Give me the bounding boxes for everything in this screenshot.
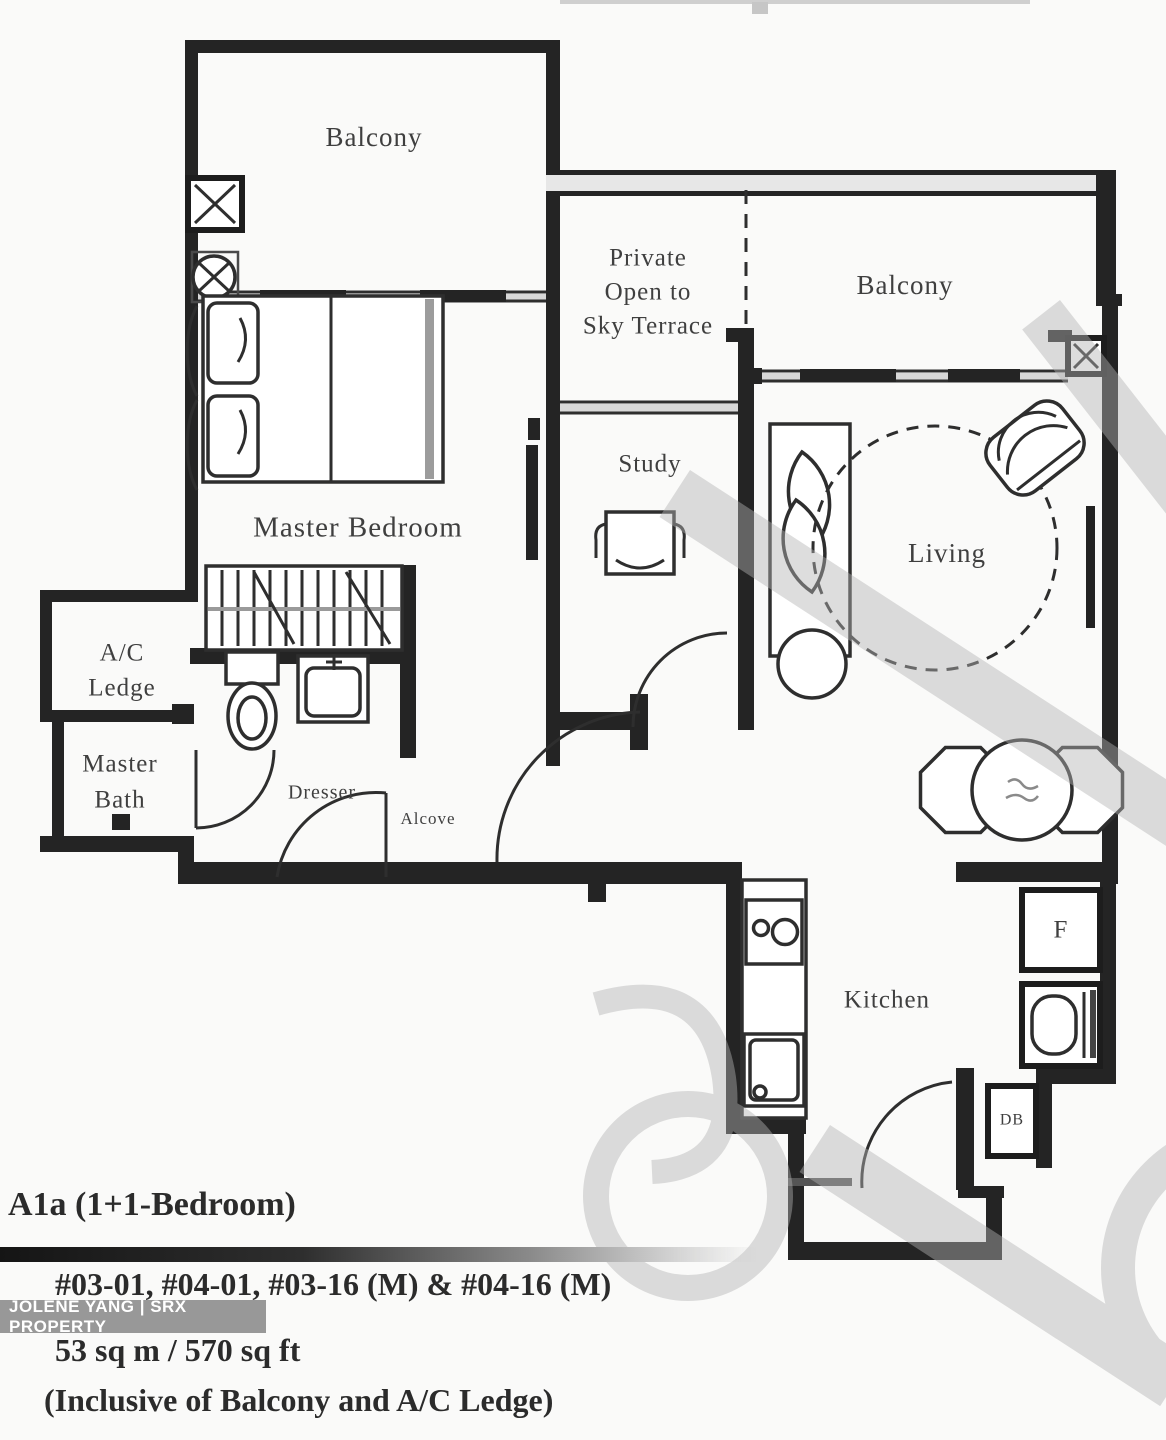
label-bath-2: Bath	[94, 787, 145, 814]
pillow	[208, 303, 258, 383]
kitchen-sink-icon	[744, 1034, 804, 1106]
unit-type-title: A1a (1+1-Bedroom)	[8, 1186, 296, 1224]
label-balcony-top: Balcony	[326, 122, 423, 152]
label-kitchen: Kitchen	[844, 987, 930, 1014]
bath-door	[196, 750, 274, 828]
label-alcove: Alcove	[400, 809, 455, 828]
scan-artifacts	[560, 0, 1030, 14]
floor-area: 53 sq m / 570 sq ft	[55, 1332, 300, 1369]
kitchen-counter	[742, 880, 806, 1118]
corridor-door	[497, 712, 640, 862]
label-bath-1: Master	[82, 751, 157, 778]
label-balcony-right: Balcony	[857, 270, 954, 300]
balcony-sliding-door-right	[750, 368, 1068, 384]
label-dresser: Dresser	[288, 782, 356, 804]
hob-icon	[746, 900, 802, 964]
label-terrace-3: Sky Terrace	[583, 313, 713, 340]
sky-terrace-window	[560, 402, 738, 413]
wardrobe	[206, 566, 402, 650]
floor-plan-drawing: Balcony Private Open to Sky Terrace Balc…	[0, 0, 1166, 1440]
sliding-panel-marker	[1086, 506, 1095, 628]
agent-watermark-text: JOLENE YANG | SRX PROPERTY	[9, 1297, 266, 1337]
divider-gradient-bar	[0, 1247, 757, 1262]
label-terrace-1: Private	[609, 245, 687, 272]
bed	[187, 296, 443, 490]
basin-icon	[298, 654, 368, 722]
wall-box-x-icon	[188, 178, 242, 230]
label-fridge: F	[1054, 917, 1069, 944]
label-ac-1: A/C	[100, 640, 145, 667]
agent-watermark-band: JOLENE YANG | SRX PROPERTY	[0, 1300, 266, 1333]
floor-area-note: (Inclusive of Balcony and A/C Ledge)	[44, 1382, 553, 1419]
armchair	[977, 392, 1092, 503]
side-table	[778, 630, 846, 698]
floor-plan-page: Balcony Private Open to Sky Terrace Balc…	[0, 0, 1166, 1440]
pillow	[208, 396, 258, 476]
label-db: DB	[1000, 1112, 1024, 1129]
toilet-icon	[226, 652, 278, 749]
label-study: Study	[618, 451, 681, 478]
label-ac-2: Ledge	[88, 675, 155, 702]
label-living: Living	[908, 538, 986, 568]
washer-icon	[1022, 984, 1100, 1066]
label-terrace-2: Open to	[605, 279, 692, 306]
label-master-bedroom: Master Bedroom	[253, 512, 463, 544]
